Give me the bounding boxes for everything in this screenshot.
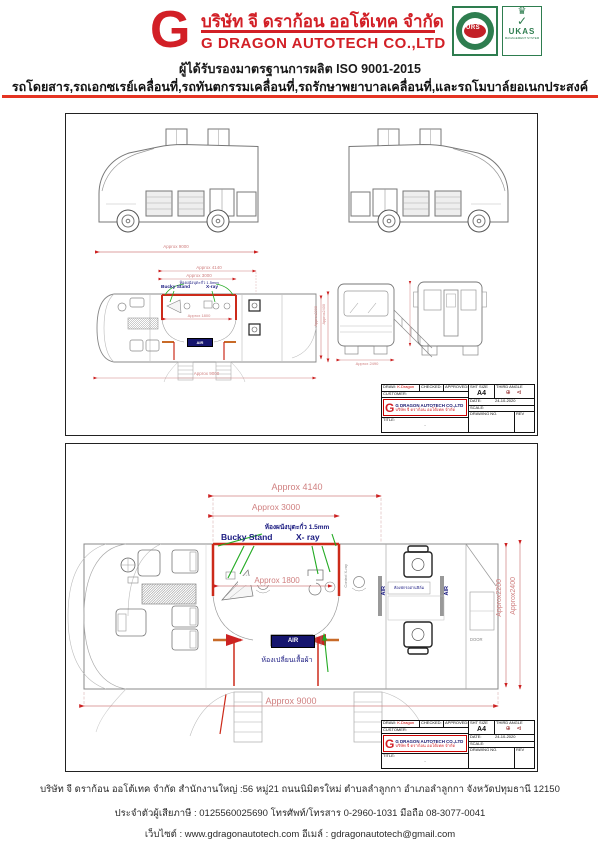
footer-address-line: บริษัท จี ดราก้อน ออโต้เทค จำกัด สำนักงา… — [0, 782, 600, 797]
approved-label: APPROVED: — [444, 385, 468, 391]
label-bucky-stand: Bucky Stand — [221, 532, 273, 542]
ukas-certification-badge: ♛ ✓ UKAS MANAGEMENT SYSTEM — [502, 6, 542, 56]
rev-label: REV — [515, 412, 534, 432]
date-label: DATE: — [469, 735, 495, 741]
scale-label: SCALE: — [469, 406, 485, 411]
draw-value: K.Dragon — [397, 721, 414, 725]
title-block-1: DRAW: K.Dragon CHECKED: APPROVED: CUSTOM… — [381, 384, 535, 433]
third-angle-symbols-icon: ⊕ ⊲ — [496, 726, 533, 733]
drawing-no-label: DRAWING NO. — [469, 748, 515, 768]
ukas-badge-text: UKAS — [503, 27, 541, 36]
label-changing-room: ห้องเปลี่ยนเสื้อผ้า — [244, 655, 330, 666]
label-control-x-ray: Control X-ray — [343, 564, 348, 588]
logo-underline — [201, 30, 435, 33]
dim-plan-inner: Approx 3000 — [162, 273, 236, 278]
dim-rear-width: Approx 2490 — [340, 361, 394, 366]
rev-label: REV — [515, 748, 534, 768]
titleblock-logo: G G DRAGON AUTOTECH CO.,LTD บริษัท จี ดร… — [383, 735, 467, 752]
date-value: 24-10-2020 — [495, 735, 534, 741]
label-bucky-stand: Bucky Stand — [161, 285, 190, 290]
drawing-sheet-1: Approx 9000 Approx 4140 Approx 3000 ห้อง… — [65, 113, 538, 436]
checked-label: CHECKED: — [420, 385, 444, 391]
air-unit-label: AIR — [271, 635, 315, 648]
drawing-sheet-2: Approx 4140 Approx 3000 ห้องผนังบุตะกั่ว… — [65, 443, 538, 772]
sht-size-value: A4 — [470, 726, 493, 734]
titleblock-company-th: บริษัท จี ดราก้อน ออโต้เทค จำกัด — [395, 744, 463, 749]
air-duct-label-2: AIR — [444, 586, 450, 595]
scale-label: SCALE: — [469, 742, 485, 747]
company-name-english: G DRAGON AUTOTECH CO.,LTD — [201, 35, 446, 52]
titleblock-company-th: บริษัท จี ดราก้อน ออโต้เทค จำกัด — [395, 408, 463, 413]
label-door: DOOR — [470, 637, 483, 642]
ukas-badge-subtext: MANAGEMENT SYSTEM — [503, 36, 541, 40]
sht-size-value: A4 — [470, 390, 493, 398]
title-label: TITLE: — [383, 417, 395, 422]
dim-plan-bottom: Approx 9000 — [97, 371, 316, 376]
label-x-ray: X-ray — [206, 285, 218, 290]
dim-width-inner: Approx2200 — [496, 579, 503, 617]
label-x-ray: X- ray — [296, 532, 320, 542]
customer-label: CUSTOMER: — [382, 728, 408, 733]
dim-height-outer: Approx2400 — [322, 304, 326, 324]
dim-bottom: Approx 9000 — [84, 696, 498, 706]
services-line: รถโดยสาร,รถเอกซเรย์เคลื่อนที่,รถทันตกรรม… — [0, 77, 600, 97]
footer-tax-phone-line: ประจำตัวผู้เสียภาษี : 0125560025690 โทรศ… — [0, 806, 600, 821]
title-block-2: DRAW: K.Dragon CHECKED: APPROVED: CUSTOM… — [381, 720, 535, 769]
urs-badge-text: URS — [466, 25, 480, 31]
customer-label: CUSTOMER: — [382, 392, 408, 397]
title-value: - — [383, 759, 467, 764]
dim-top: Approx 4140 — [213, 482, 381, 492]
drawing-no-label: DRAWING NO. — [469, 412, 515, 432]
titleblock-logo: G G DRAGON AUTOTECH CO.,LTD บริษัท จี ดร… — [383, 399, 467, 416]
iso-certification-line: ผู้ได้รับรองมาตรฐานการผลิต ISO 9001-2015 — [0, 59, 600, 79]
third-angle-symbols-icon: ⊕ ⊲ — [496, 390, 533, 397]
checkmark-icon: ✓ — [503, 16, 541, 27]
dim-inner: Approx 3000 — [213, 502, 339, 512]
header-divider-rule — [2, 95, 598, 98]
dim-width-outer: Approx2400 — [510, 577, 517, 615]
approved-label: APPROVED: — [444, 721, 468, 727]
draw-value: K.Dragon — [397, 385, 414, 389]
dim-room: Approx 1800 — [238, 576, 316, 585]
page-header: G บริษัท จี ดราก้อน ออโต้เทค จำกัด G DRA… — [0, 0, 600, 110]
checked-label: CHECKED: — [420, 721, 444, 727]
draw-label: DRAW: — [383, 721, 396, 725]
dim-plan-top: Approx 4140 — [162, 265, 256, 270]
urs-seal-icon — [454, 8, 496, 54]
company-logo: G — [150, 6, 190, 54]
air-unit-label: AIR — [187, 338, 213, 347]
dim-room: Approx 1800 — [172, 313, 226, 318]
titleblock-logo-g: G — [384, 402, 395, 414]
title-value: - — [383, 423, 467, 428]
date-label: DATE: — [469, 399, 495, 405]
urs-certification-badge: URS — [452, 6, 498, 56]
titleblock-logo-g: G — [384, 738, 395, 750]
footer-website-email-line: เว็บไซต์ : www.gdragonautotech.com อีเมล… — [0, 827, 600, 842]
label-waiting-room: ห้องพักรออ่านฟิล์ม — [388, 585, 430, 591]
date-value: 24-10-2020 — [495, 399, 534, 405]
dim-height-inner: Approx2200 — [314, 306, 318, 326]
air-duct-label-1: AIR — [381, 586, 387, 595]
draw-label: DRAW: — [383, 385, 396, 389]
dim-side-length: Approx 9000 — [126, 244, 226, 249]
label-lead-wall: ห้องผนังบุตะกั่ว 1.5mm — [216, 522, 378, 532]
title-label: TITLE: — [383, 753, 395, 758]
